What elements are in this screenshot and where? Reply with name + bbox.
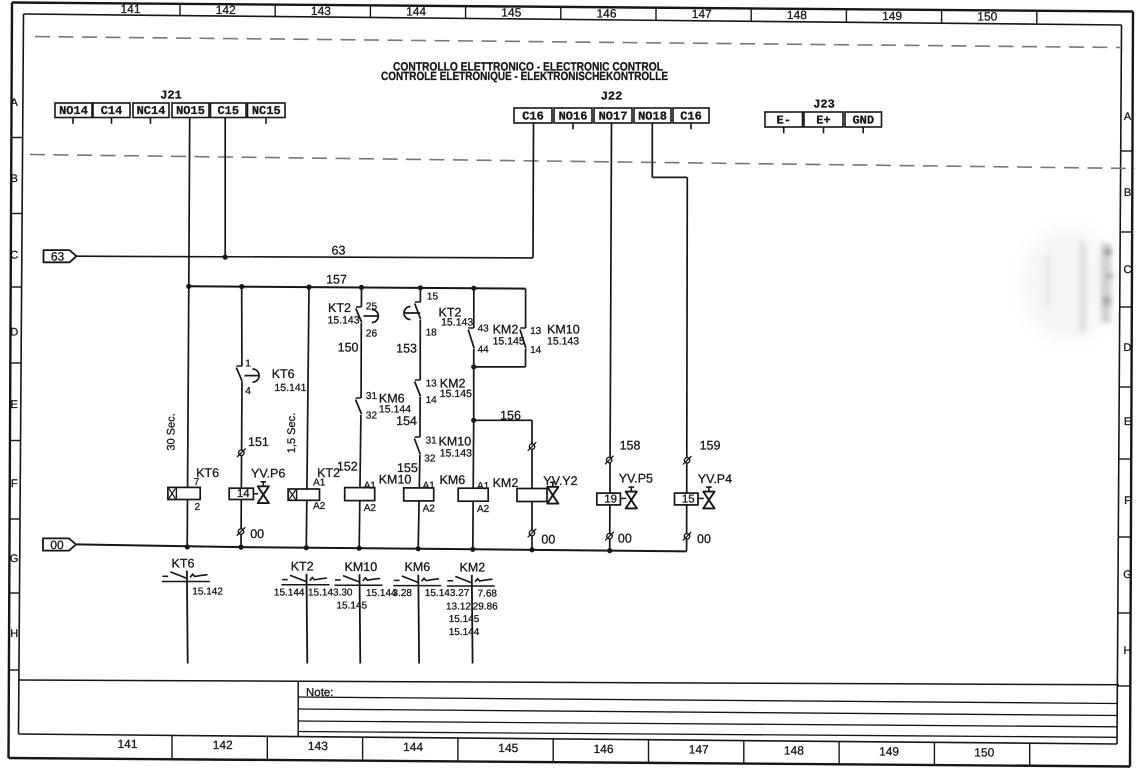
svg-text:GND: GND: [852, 113, 874, 127]
svg-text:26: 26: [366, 329, 378, 340]
svg-text:H: H: [10, 628, 18, 640]
svg-text:150: 150: [974, 746, 994, 760]
svg-text:NO15: NO15: [176, 104, 205, 118]
svg-text:18: 18: [426, 328, 438, 339]
svg-text:D: D: [10, 327, 18, 339]
svg-text:KT2: KT2: [328, 301, 351, 315]
svg-text:J23: J23: [813, 98, 835, 112]
svg-text:142: 142: [216, 3, 236, 17]
svg-text:15.141: 15.141: [274, 382, 306, 394]
svg-text:1: 1: [245, 359, 251, 370]
svg-text:KM6: KM6: [440, 473, 466, 487]
svg-text:15.145: 15.145: [449, 614, 480, 625]
svg-text:CONTROLE ELETRONIQUE - ELEKTRO: CONTROLE ELETRONIQUE - ELEKTRONISCHEKONT…: [381, 69, 668, 83]
svg-text:J22: J22: [601, 90, 623, 104]
svg-text:154: 154: [396, 414, 417, 428]
svg-text:B: B: [11, 173, 18, 185]
svg-text:15.145: 15.145: [337, 601, 368, 612]
svg-text:144: 144: [403, 740, 423, 754]
svg-text:F: F: [1124, 495, 1131, 507]
svg-text:C16: C16: [522, 109, 544, 123]
svg-text:A2: A2: [313, 501, 326, 512]
svg-text:F: F: [11, 478, 18, 490]
svg-text:KM6: KM6: [405, 560, 431, 574]
svg-text:D: D: [1124, 342, 1132, 354]
svg-text:A: A: [11, 97, 19, 109]
svg-text:G: G: [1123, 569, 1132, 581]
svg-text:14: 14: [426, 395, 438, 406]
svg-text:NC15: NC15: [252, 104, 281, 118]
svg-text:15.145: 15.145: [493, 336, 525, 348]
svg-text:157: 157: [326, 273, 347, 287]
svg-text:00: 00: [250, 527, 264, 541]
svg-text:13: 13: [530, 326, 542, 337]
svg-text:142: 142: [213, 738, 233, 752]
svg-text:63: 63: [51, 250, 65, 264]
svg-text:147: 147: [689, 743, 709, 757]
svg-text:A1: A1: [423, 481, 436, 492]
svg-text:C16: C16: [680, 109, 702, 123]
svg-text:A2: A2: [477, 504, 490, 515]
svg-text:YV.P5: YV.P5: [619, 472, 653, 486]
svg-text:14: 14: [530, 345, 542, 356]
svg-text:143: 143: [308, 739, 328, 753]
svg-text:150: 150: [338, 340, 359, 354]
svg-text:32: 32: [424, 454, 436, 465]
svg-text:KT6: KT6: [172, 557, 195, 571]
svg-text:A2: A2: [423, 503, 436, 514]
svg-text:A1: A1: [477, 481, 490, 492]
svg-text:149: 149: [879, 745, 899, 759]
svg-text:156: 156: [500, 408, 521, 422]
svg-text:145: 145: [501, 6, 521, 20]
svg-text:19: 19: [604, 493, 617, 505]
svg-text:146: 146: [593, 742, 613, 756]
svg-text:A2: A2: [364, 503, 377, 514]
svg-text:7: 7: [194, 477, 200, 488]
svg-text:30 Sec.: 30 Sec.: [166, 413, 178, 450]
svg-text:NO18: NO18: [638, 109, 667, 123]
svg-text:63: 63: [332, 244, 346, 258]
svg-text:B: B: [1124, 187, 1131, 199]
svg-text:15.143.30: 15.143.30: [308, 588, 353, 599]
svg-text:E-: E-: [777, 113, 791, 127]
svg-text:15: 15: [682, 493, 695, 505]
svg-text:151: 151: [248, 435, 269, 449]
svg-text:3.28: 3.28: [393, 588, 413, 599]
svg-text:13.12: 13.12: [446, 601, 471, 612]
svg-text:NC14: NC14: [137, 104, 166, 118]
svg-text:A1: A1: [364, 480, 377, 491]
svg-text:43: 43: [478, 324, 490, 335]
svg-text:1,5 Sec.: 1,5 Sec.: [286, 413, 298, 453]
svg-text:150: 150: [977, 10, 997, 24]
svg-text:KT2: KT2: [291, 560, 314, 574]
svg-text:YV.Y2: YV.Y2: [543, 474, 577, 488]
svg-text:J21: J21: [160, 89, 182, 103]
svg-text:15.145: 15.145: [440, 388, 472, 400]
svg-text:A: A: [1124, 111, 1132, 123]
svg-text:15.143: 15.143: [441, 317, 473, 329]
svg-text:149: 149: [882, 9, 902, 23]
svg-text:E: E: [11, 399, 18, 411]
svg-text:15.143: 15.143: [547, 336, 579, 348]
svg-text:15.143: 15.143: [440, 447, 472, 459]
svg-text:KM10: KM10: [379, 473, 412, 487]
svg-text:15.144: 15.144: [274, 588, 305, 599]
svg-text:KM2: KM2: [493, 476, 519, 490]
svg-text:145: 145: [498, 741, 518, 755]
svg-text:C: C: [1124, 264, 1132, 276]
svg-text:31: 31: [366, 391, 378, 402]
svg-text:KM10: KM10: [547, 323, 580, 337]
svg-text:153: 153: [396, 342, 417, 356]
svg-text:NO17: NO17: [599, 109, 628, 123]
svg-text:159: 159: [700, 439, 721, 453]
svg-text:00: 00: [50, 538, 64, 552]
svg-text:147: 147: [692, 7, 712, 21]
svg-text:144: 144: [406, 5, 426, 19]
svg-text:31: 31: [426, 435, 438, 446]
svg-text:H: H: [1124, 645, 1132, 657]
svg-text:E+: E+: [816, 113, 830, 127]
svg-text:YV.P4: YV.P4: [698, 472, 732, 486]
svg-text:44: 44: [478, 345, 490, 356]
svg-text:141: 141: [120, 2, 140, 16]
svg-text:15.144: 15.144: [449, 627, 480, 638]
svg-text:15.142: 15.142: [192, 586, 223, 597]
svg-text:146: 146: [596, 6, 616, 20]
svg-text:32: 32: [366, 411, 378, 422]
svg-text:148: 148: [787, 8, 807, 22]
svg-text:C: C: [10, 250, 18, 262]
svg-text:00: 00: [697, 532, 711, 546]
svg-text:14: 14: [237, 488, 250, 500]
svg-text:C15: C15: [217, 104, 239, 118]
svg-text:KM10: KM10: [345, 560, 378, 574]
svg-text:00: 00: [541, 533, 555, 547]
svg-text:E: E: [1124, 416, 1131, 428]
svg-text:15.143: 15.143: [328, 315, 360, 327]
svg-text:NO16: NO16: [559, 109, 588, 123]
svg-text:4: 4: [245, 386, 251, 397]
svg-text:KM2: KM2: [460, 561, 486, 575]
svg-text:25: 25: [366, 302, 378, 313]
svg-text:158: 158: [620, 439, 641, 453]
svg-text:YV.P6: YV.P6: [251, 467, 285, 481]
svg-text:15: 15: [427, 291, 439, 302]
svg-text:00: 00: [618, 532, 632, 546]
svg-text:143: 143: [311, 4, 331, 18]
svg-text:G: G: [10, 553, 19, 565]
svg-text:A1: A1: [313, 477, 326, 488]
svg-text:2: 2: [195, 502, 201, 513]
svg-text:13: 13: [426, 378, 438, 389]
svg-text:29.86: 29.86: [473, 601, 498, 612]
svg-text:KT6: KT6: [196, 466, 219, 480]
svg-text:141: 141: [117, 737, 137, 751]
svg-text:148: 148: [784, 744, 804, 758]
svg-text:7.68: 7.68: [478, 589, 498, 600]
svg-text:KM10: KM10: [439, 434, 472, 448]
svg-text:KT6: KT6: [272, 367, 295, 381]
svg-text:C14: C14: [101, 104, 123, 118]
svg-text:NO14: NO14: [59, 104, 88, 118]
svg-text:KM2: KM2: [493, 323, 519, 337]
svg-text:15.143.27: 15.143.27: [425, 588, 470, 599]
